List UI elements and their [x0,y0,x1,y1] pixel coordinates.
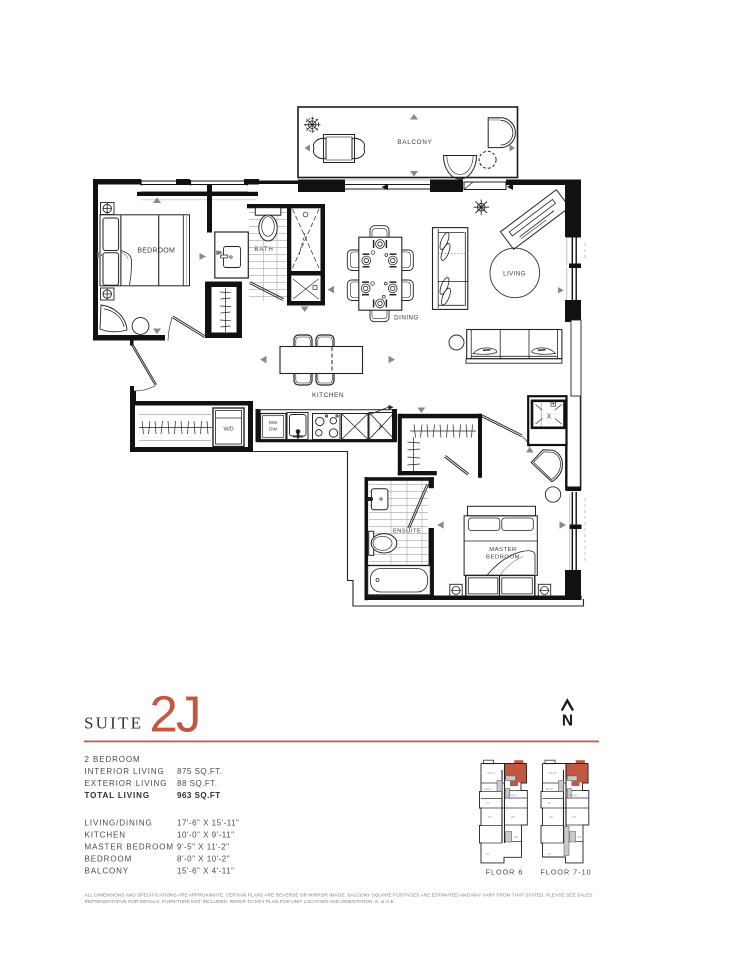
svg-text:FLOOR 6: FLOOR 6 [486,868,524,877]
svg-text:FLOOR 7-10: FLOOR 7-10 [540,868,591,877]
svg-text:BALCONY: BALCONY [85,867,130,876]
svg-text:2 BEDROOM: 2 BEDROOM [85,755,141,764]
svg-text:N: N [562,713,573,730]
svg-text:1K: 1K [548,801,552,805]
svg-text:ENSUITE: ENSUITE [393,529,421,535]
svg-text:1B+D: 1B+D [546,787,554,791]
svg-text:MW: MW [269,420,278,426]
svg-text:TOTAL LIVING: TOTAL LIVING [85,791,150,800]
svg-text:BALCONY: BALCONY [397,139,432,146]
svg-text:2K: 2K [550,815,554,819]
svg-text:875 SQ.FT.: 875 SQ.FT. [177,767,222,776]
svg-text:LIVING: LIVING [503,271,526,278]
svg-text:KITCHEN: KITCHEN [312,392,344,399]
svg-text:2H+D: 2H+D [549,771,558,775]
svg-text:2H+D: 2H+D [487,771,496,775]
svg-text:1B+D: 1B+D [508,793,516,797]
svg-text:2E: 2E [578,835,582,839]
svg-text:2D: 2D [511,815,516,819]
svg-text:BEDROOM: BEDROOM [486,555,520,561]
svg-text:KITCHEN: KITCHEN [85,831,126,840]
svg-text:MASTER: MASTER [489,547,517,553]
svg-text:DW: DW [269,427,277,433]
svg-text:REPRESENTATIVE FOR DETAILS. FU: REPRESENTATIVE FOR DETAILS. FURNITURE NO… [85,899,396,905]
svg-text:15'-6" X 4'-11": 15'-6" X 4'-11" [177,867,234,876]
svg-text:9'-5" X 11'-2": 9'-5" X 11'-2" [177,843,230,852]
svg-text:2F: 2F [486,852,490,856]
svg-text:1B+D: 1B+D [570,793,578,797]
svg-text:DINING: DINING [394,315,419,322]
svg-text:INTERIOR LIVING: INTERIOR LIVING [85,767,165,776]
svg-text:17'-6" X 15'-11": 17'-6" X 15'-11" [177,819,239,828]
svg-text:88 SQ.FT.: 88 SQ.FT. [177,779,218,788]
svg-text:EXTERIOR LIVING: EXTERIOR LIVING [85,779,168,788]
svg-text:2J: 2J [150,686,200,743]
svg-text:BATH: BATH [254,246,273,253]
svg-text:8'-0" X 10'-2": 8'-0" X 10'-2" [177,855,230,864]
svg-text:2K: 2K [488,815,492,819]
svg-text:MASTER BEDROOM: MASTER BEDROOM [85,843,175,852]
svg-text:LIVING/DINING: LIVING/DINING [85,819,153,828]
svg-text:1K: 1K [486,801,490,805]
svg-text:2F: 2F [548,852,552,856]
svg-text:ALL DIMENSIONS AND SPECIFICATI: ALL DIMENSIONS AND SPECIFICATIONS ARE AP… [85,893,593,899]
svg-text:X: X [547,414,552,421]
svg-text:F: F [379,426,383,432]
svg-text:963 SQ.FT: 963 SQ.FT [177,791,221,800]
svg-text:BEDROOM: BEDROOM [85,855,133,864]
svg-text:2E: 2E [514,835,518,839]
svg-text:1B+D: 1B+D [484,787,492,791]
svg-text:W/D: W/D [223,427,233,433]
svg-text:2D: 2D [573,815,578,819]
svg-text:SUITE: SUITE [84,714,143,733]
svg-text:BEDROOM: BEDROOM [137,247,175,254]
svg-text:10'-0" X 9'-11": 10'-0" X 9'-11" [177,831,234,840]
